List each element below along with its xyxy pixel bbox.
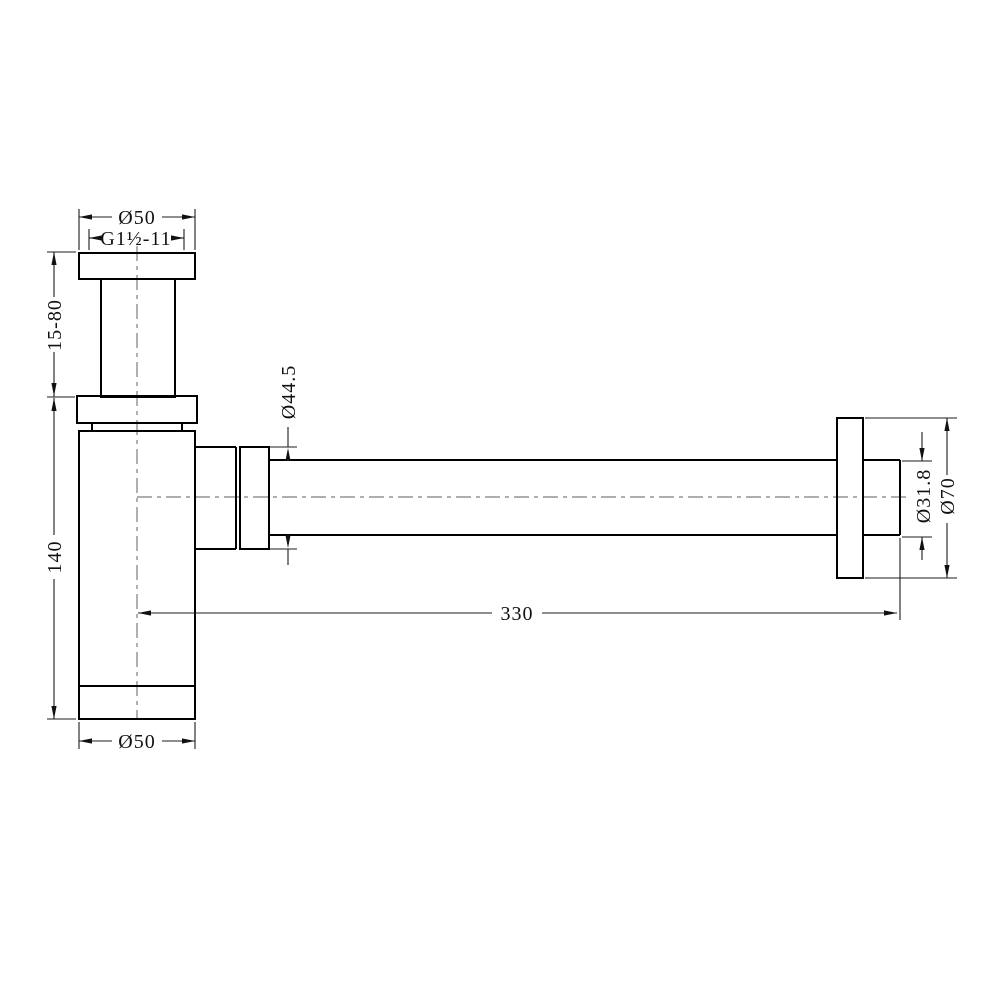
dim-label-bottom-diameter: Ø50 (118, 731, 155, 753)
dim-label-pipe-diameter: Ø31.8 (913, 469, 935, 523)
dim-label-flange-diameter: Ø70 (937, 477, 959, 514)
centerlines (137, 246, 908, 719)
arrowhead (51, 252, 56, 265)
dim-label-top-diameter: Ø50 (118, 207, 155, 229)
arrowhead (138, 610, 151, 615)
arrowhead (51, 706, 56, 719)
arrowhead (171, 235, 184, 240)
dim-label-height-range: 15-80 (44, 299, 66, 351)
arrowhead (182, 214, 195, 219)
arrowhead (51, 398, 56, 411)
arrowhead (182, 738, 195, 743)
bottle-trap-technical-drawing: Ø50 G1½-11 15-80 140 Ø44.5 330 Ø31.8 Ø70… (0, 0, 1000, 1000)
arrowhead (884, 610, 897, 615)
arrowhead (285, 535, 290, 548)
dim-label-length: 330 (501, 603, 534, 625)
arrowhead (944, 418, 949, 431)
arrowhead (51, 383, 56, 396)
arrowhead (919, 537, 924, 550)
arrowhead (944, 565, 949, 578)
arrowhead (79, 214, 92, 219)
extension-lines (47, 209, 957, 749)
dimension-labels: Ø50 G1½-11 15-80 140 Ø44.5 330 Ø31.8 Ø70… (44, 207, 959, 753)
arrowheads (51, 214, 949, 743)
outlet-nut (240, 447, 269, 549)
dim-label-thread: G1½-11 (100, 228, 171, 250)
dim-label-nut-diameter: Ø44.5 (278, 365, 300, 419)
dimension-lines (54, 217, 947, 741)
bottle-trap-outline (77, 253, 900, 719)
inlet-riser-pipe (101, 279, 175, 397)
wall-flange (837, 418, 863, 578)
drawing-canvas: Ø50 G1½-11 15-80 140 Ø44.5 330 Ø31.8 Ø70… (0, 0, 1000, 1000)
arrowhead (919, 448, 924, 461)
dim-label-body-height: 140 (44, 541, 66, 574)
arrowhead (79, 738, 92, 743)
arrowhead (285, 448, 290, 461)
